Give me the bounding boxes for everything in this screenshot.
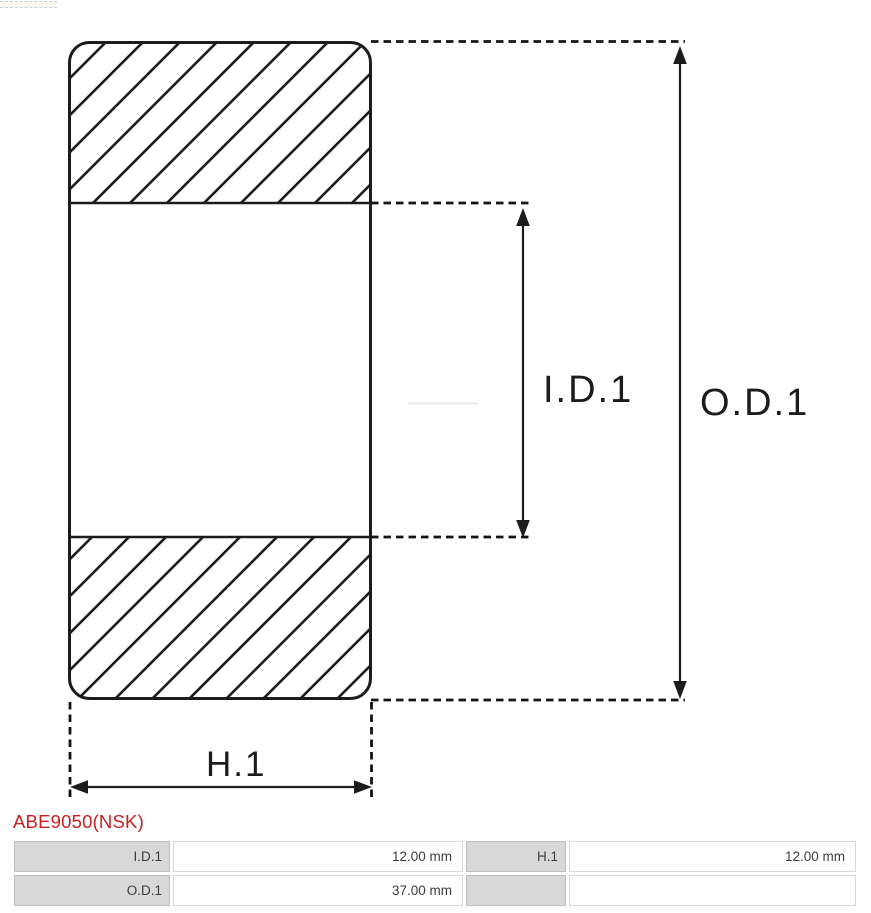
spec-label-id: I.D.1	[14, 841, 170, 872]
od-dimension-arrow	[673, 46, 687, 699]
h-dimension-label: H.1	[206, 745, 266, 784]
spec-value-h: 12.00 mm	[569, 841, 856, 872]
outer-race-bottom-hatch	[69, 537, 371, 699]
id-dimension-label: I.D.1	[543, 369, 633, 411]
spec-value-empty	[569, 875, 856, 906]
spec-label-h: H.1	[466, 841, 566, 872]
part-number-link[interactable]: ABE9050(NSK)	[13, 811, 144, 833]
od-dimension-label: O.D.1	[700, 382, 809, 424]
spec-table: I.D.1 12.00 mm H.1 12.00 mm O.D.1 37.00 …	[14, 841, 856, 906]
outer-race-top-hatch	[69, 42, 371, 203]
spec-label-empty	[466, 875, 566, 906]
spec-label-od: O.D.1	[14, 875, 170, 906]
bearing-cross-section-diagram: I.D.1 O.D.1 H.1	[0, 0, 871, 810]
spec-value-od: 37.00 mm	[173, 875, 463, 906]
spec-value-id: 12.00 mm	[173, 841, 463, 872]
id-dimension-arrow	[516, 208, 530, 538]
bearing-spec-page: I.D.1 O.D.1 H.1 ABE9050(NSK) I.D.1 12.00…	[0, 0, 871, 913]
